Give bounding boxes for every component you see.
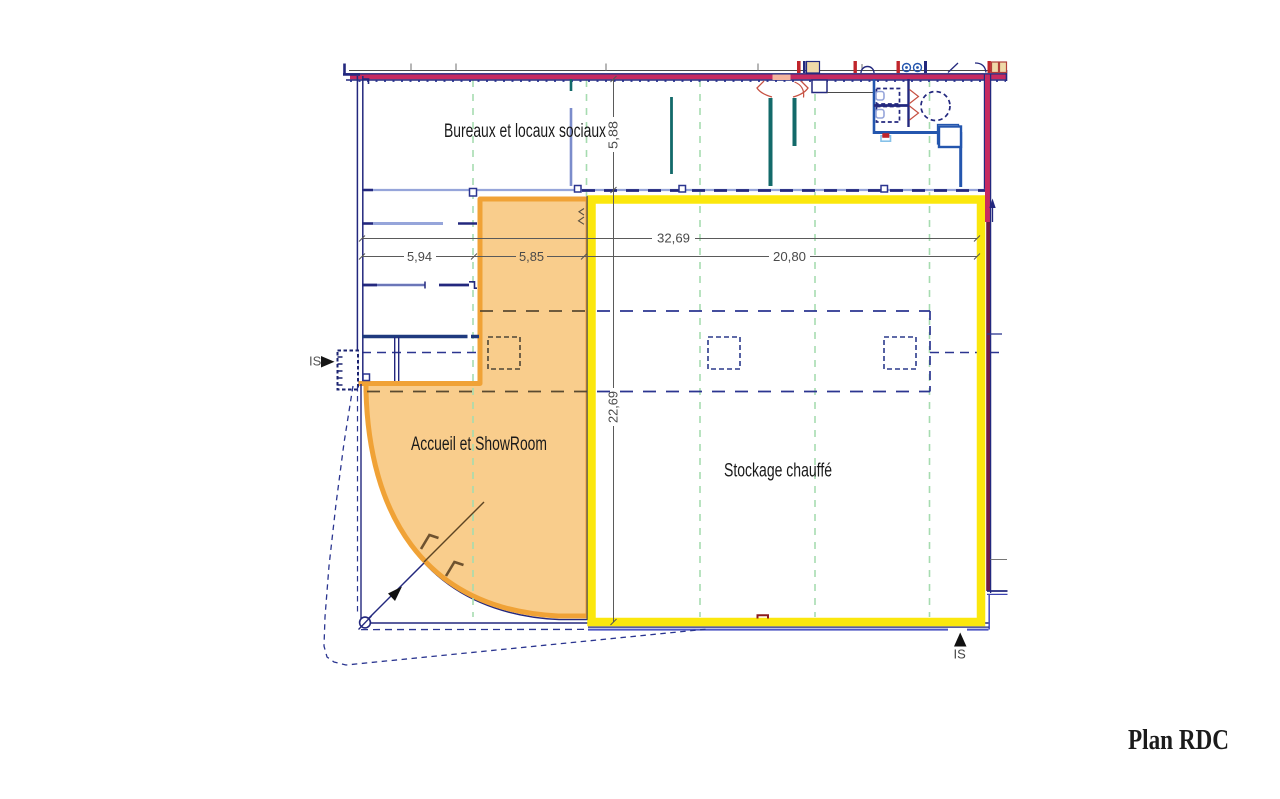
svg-text:Bureaux et locaux sociaux: Bureaux et locaux sociaux xyxy=(444,121,606,142)
svg-text:22,69: 22,69 xyxy=(606,391,621,423)
svg-text:Plan RDC: Plan RDC xyxy=(1128,725,1229,756)
svg-text:5,94: 5,94 xyxy=(407,249,432,264)
svg-text:20,80: 20,80 xyxy=(773,249,806,264)
svg-text:5,85: 5,85 xyxy=(519,249,544,264)
svg-text:IS: IS xyxy=(954,647,967,662)
svg-text:IS: IS xyxy=(309,354,322,369)
svg-text:Stockage chauffé: Stockage chauffé xyxy=(724,461,832,482)
svg-text:32,69: 32,69 xyxy=(657,231,690,246)
svg-text:Accueil et ShowRoom: Accueil et ShowRoom xyxy=(411,434,547,455)
svg-text:5,88: 5,88 xyxy=(606,121,621,149)
